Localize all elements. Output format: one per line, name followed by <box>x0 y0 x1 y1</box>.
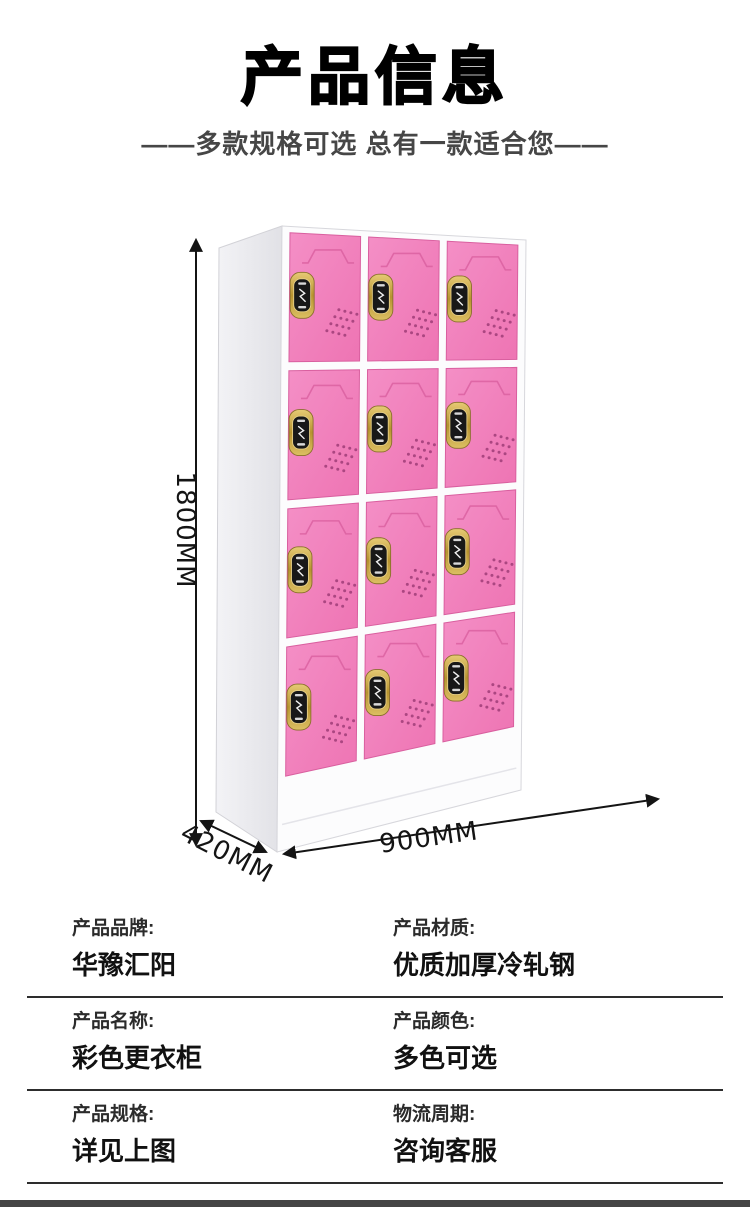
spec-logistics: 物流周期: 咨询客服 <box>375 1104 723 1167</box>
spec-row-1: 产品品牌: 华豫汇阳 产品材质: 优质加厚冷轧钢 <box>27 905 723 998</box>
locker-door <box>444 490 516 615</box>
door-lock <box>369 274 393 320</box>
spec-value: 华豫汇阳 <box>72 950 375 981</box>
locker-door <box>445 367 517 487</box>
door-lock <box>366 670 390 716</box>
subtitle-tagline: ——多款规格可选 总有一款适合您—— <box>0 124 750 161</box>
locker-door <box>287 503 359 638</box>
locker-door <box>367 369 439 494</box>
spec-row-2: 产品名称: 彩色更衣柜 产品颜色: 多色可选 <box>27 998 723 1091</box>
door-lock <box>368 406 392 452</box>
locker-door <box>288 370 360 500</box>
door-lock <box>447 276 471 322</box>
spec-specification: 产品规格: 详见上图 <box>27 1104 375 1167</box>
height-dimension-label: 1800MM <box>170 471 200 588</box>
door-lock <box>367 538 391 584</box>
locker-door <box>286 636 358 776</box>
door-lock <box>289 410 313 456</box>
spec-material: 产品材质: 优质加厚冷轧钢 <box>375 918 723 981</box>
locker-door <box>368 237 440 361</box>
spec-value: 优质加厚冷轧钢 <box>393 950 723 981</box>
locker-door <box>365 496 437 626</box>
spec-label: 产品品牌: <box>72 918 375 941</box>
bottom-divider-bar <box>0 1200 750 1207</box>
locker-door <box>446 241 518 360</box>
spec-label: 产品规格: <box>72 1104 375 1127</box>
spec-label: 产品颜色: <box>393 1011 723 1034</box>
spec-value: 详见上图 <box>72 1136 375 1167</box>
locker-cabinet <box>216 226 526 852</box>
page-title: 产品信息 <box>0 26 750 116</box>
cabinet-side-panel <box>216 226 282 852</box>
locker-door <box>443 612 515 742</box>
door-lock <box>290 272 314 318</box>
spec-brand: 产品品牌: 华豫汇阳 <box>27 918 375 981</box>
spec-label: 产品名称: <box>72 1011 375 1034</box>
door-lock <box>287 684 311 730</box>
spec-label: 物流周期: <box>393 1104 723 1127</box>
spec-product-name: 产品名称: 彩色更衣柜 <box>27 1011 375 1074</box>
locker-door <box>289 233 361 362</box>
spec-value: 多色可选 <box>393 1043 723 1074</box>
spec-value: 咨询客服 <box>393 1136 723 1167</box>
product-image: 1800MM 420MM 900MM <box>140 195 700 905</box>
specs-table: 产品品牌: 华豫汇阳 产品材质: 优质加厚冷轧钢 产品名称: 彩色更衣柜 产品颜… <box>27 905 723 1184</box>
door-lock <box>288 547 312 593</box>
door-lock <box>446 402 470 448</box>
door-lock <box>445 529 469 575</box>
locker-door <box>364 624 436 759</box>
spec-value: 彩色更衣柜 <box>72 1043 375 1074</box>
spec-label: 产品材质: <box>393 918 723 941</box>
spec-color: 产品颜色: 多色可选 <box>375 1011 723 1074</box>
product-info-page: 产品信息 ——多款规格可选 总有一款适合您—— <box>0 0 750 1207</box>
door-lock <box>444 655 468 701</box>
spec-row-3: 产品规格: 详见上图 物流周期: 咨询客服 <box>27 1091 723 1184</box>
